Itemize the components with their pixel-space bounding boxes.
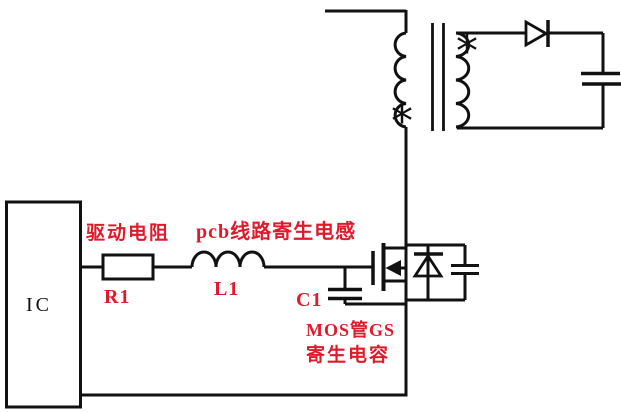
resistor-r1-label: R1	[104, 286, 130, 308]
output-capacitor-icon	[581, 74, 621, 85]
polarity-mark-primary: *	[391, 96, 413, 147]
transformer-core-icon	[433, 23, 444, 131]
resistor-r1	[103, 255, 153, 279]
output-diode-icon	[526, 20, 548, 47]
ic-label: IC	[26, 294, 52, 316]
inductor-l1-label: L1	[214, 278, 239, 300]
drive-resistor-caption: 驱动电阻	[86, 224, 170, 245]
mosfet	[373, 243, 406, 291]
mos-gs-caption-line2: 寄生电容	[306, 346, 390, 367]
circuit-canvas: * * IC 驱动电阻 pcb线路寄生电感 R1 L1 C1 MOS管GS 寄生…	[0, 0, 621, 413]
pcb-inductance-caption: pcb线路寄生电感	[196, 221, 356, 243]
inductor-l1	[192, 252, 264, 267]
body-diode-icon	[414, 245, 443, 300]
drain-source-capacitor-icon	[451, 245, 479, 300]
capacitor-c1	[328, 267, 406, 304]
mosfet-body-arrow-icon	[386, 260, 402, 276]
secondary-loop	[456, 20, 621, 128]
body-diode-loop	[406, 245, 479, 300]
capacitor-c1-label: C1	[296, 289, 322, 311]
mos-gs-caption-line1: MOS管GS	[306, 321, 395, 341]
